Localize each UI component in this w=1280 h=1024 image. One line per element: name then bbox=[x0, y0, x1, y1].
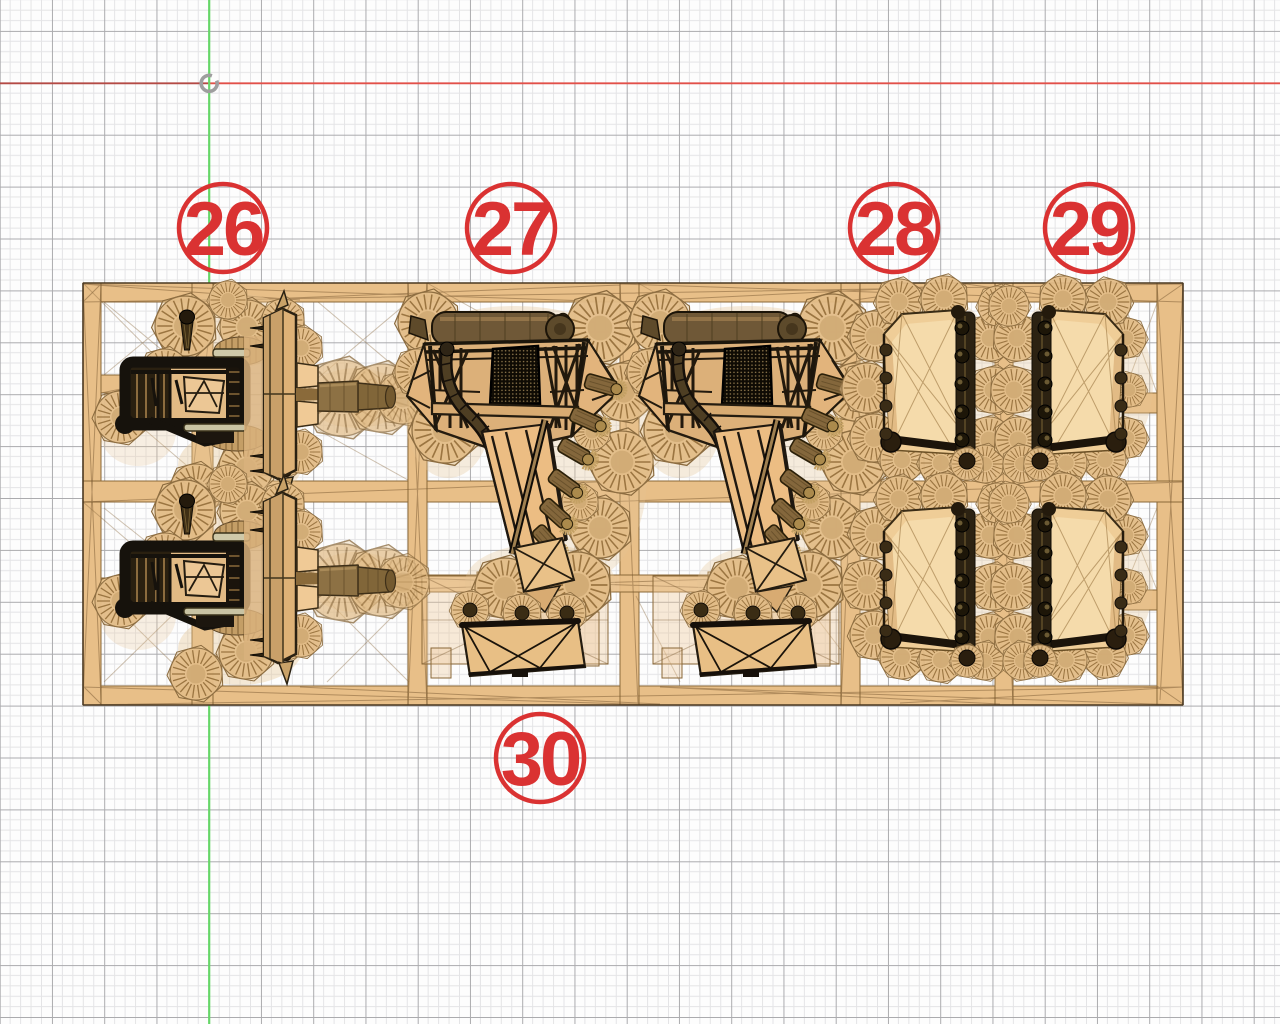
svg-text:29: 29 bbox=[1050, 187, 1129, 272]
svg-text:28: 28 bbox=[855, 187, 934, 272]
svg-text:27: 27 bbox=[472, 187, 551, 272]
svg-text:26: 26 bbox=[184, 187, 263, 272]
svg-text:30: 30 bbox=[501, 717, 580, 802]
